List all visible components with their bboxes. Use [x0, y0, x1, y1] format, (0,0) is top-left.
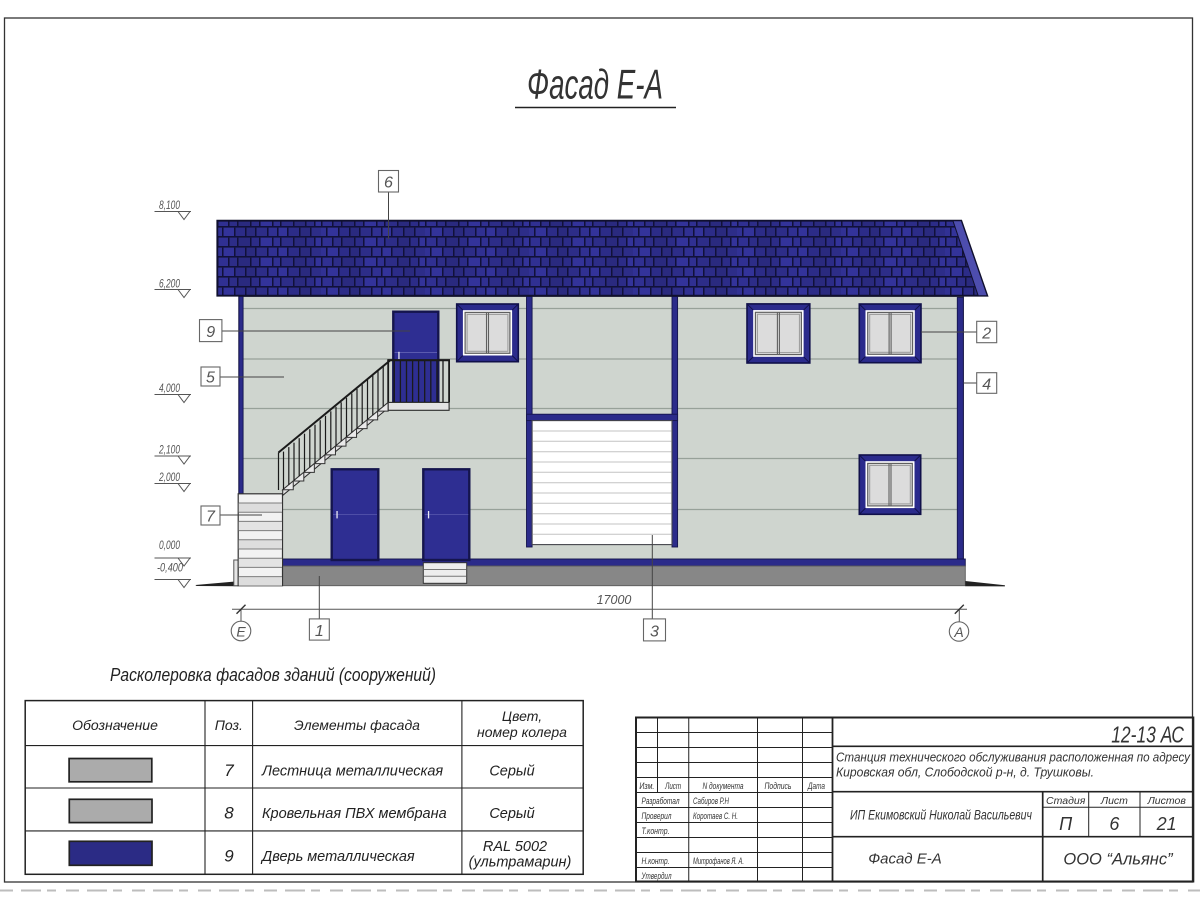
svg-text:Разработал: Разработал [642, 796, 681, 806]
svg-text:6: 6 [1109, 814, 1120, 834]
svg-text:Расколеровка фасадов зданий (с: Расколеровка фасадов зданий (сооружений) [110, 664, 436, 685]
svg-text:Лист: Лист [664, 781, 681, 791]
svg-text:П: П [1059, 814, 1073, 834]
svg-text:Серый: Серый [489, 764, 534, 780]
svg-text:9: 9 [206, 324, 215, 341]
svg-text:7: 7 [206, 509, 216, 526]
svg-text:Проверил: Проверил [642, 811, 673, 821]
svg-text:Стадия: Стадия [1046, 795, 1086, 807]
svg-text:6: 6 [384, 175, 393, 192]
svg-text:Кровельная ПВХ мембрана: Кровельная ПВХ мембрана [262, 806, 447, 822]
svg-text:(ультрамарин): (ультрамарин) [469, 855, 572, 871]
svg-text:5: 5 [206, 370, 215, 387]
svg-text:номер колера: номер колера [477, 724, 567, 740]
svg-text:Фасад Е-А: Фасад Е-А [868, 851, 942, 868]
svg-text:2,100: 2,100 [158, 445, 180, 457]
svg-text:ИП Екимовский Николай Васильев: ИП Екимовский Николай Васильевич [850, 807, 1032, 823]
svg-text:Подпись: Подпись [765, 781, 792, 791]
svg-text:Изм.: Изм. [639, 781, 654, 791]
svg-text:Листов: Листов [1147, 795, 1187, 807]
svg-text:Дата: Дата [807, 781, 825, 791]
svg-text:21: 21 [1156, 814, 1177, 834]
svg-text:2: 2 [981, 326, 991, 343]
svg-text:А: А [953, 624, 963, 640]
svg-text:1: 1 [315, 623, 324, 640]
svg-text:Лист: Лист [1100, 795, 1128, 807]
svg-text:N документа: N документа [703, 781, 744, 791]
svg-text:17000: 17000 [597, 593, 632, 607]
svg-text:Фасад Е-А: Фасад Е-А [527, 61, 663, 108]
svg-text:Элементы фасада: Элементы фасада [294, 717, 420, 733]
svg-text:9: 9 [224, 847, 234, 866]
svg-text:Серый: Серый [489, 806, 534, 822]
svg-text:Т.контр.: Т.контр. [642, 826, 670, 836]
svg-text:3: 3 [650, 623, 659, 640]
svg-text:8,100: 8,100 [159, 200, 180, 212]
svg-text:12-13 АС: 12-13 АС [1111, 723, 1184, 748]
svg-text:Цвет,: Цвет, [502, 708, 542, 724]
svg-text:Станция технического обслужива: Станция технического обслуживания распол… [836, 750, 1191, 765]
svg-text:Обозначение: Обозначение [72, 717, 158, 733]
svg-text:4: 4 [982, 377, 991, 394]
svg-text:6,200: 6,200 [159, 279, 180, 291]
svg-text:Н.контр.: Н.контр. [642, 856, 670, 866]
svg-text:Сабиров Р.Н: Сабиров Р.Н [693, 796, 729, 806]
svg-text:ООО “Альянс”: ООО “Альянс” [1063, 851, 1174, 869]
svg-text:Е: Е [236, 624, 246, 640]
svg-text:Митрофанов Я. А.: Митрофанов Я. А. [693, 856, 744, 866]
svg-text:RAL 5002: RAL 5002 [483, 839, 547, 855]
svg-text:Кировская обл, Слободской р-н,: Кировская обл, Слободской р-н, д. Трушко… [836, 765, 1094, 780]
svg-text:Утвердил: Утвердил [641, 871, 672, 881]
svg-text:Коротаев С. Н.: Коротаев С. Н. [693, 811, 738, 821]
svg-text:8: 8 [224, 804, 234, 823]
svg-text:7: 7 [224, 761, 234, 780]
svg-text:0,000: 0,000 [159, 540, 180, 552]
svg-text:-0,400: -0,400 [157, 563, 183, 575]
svg-text:Дверь металлическая: Дверь металлическая [260, 849, 415, 865]
svg-text:Лестница металлическая: Лестница металлическая [261, 764, 443, 780]
svg-text:4,000: 4,000 [159, 383, 180, 395]
svg-text:Поз.: Поз. [215, 717, 243, 733]
svg-text:2,000: 2,000 [158, 472, 180, 484]
